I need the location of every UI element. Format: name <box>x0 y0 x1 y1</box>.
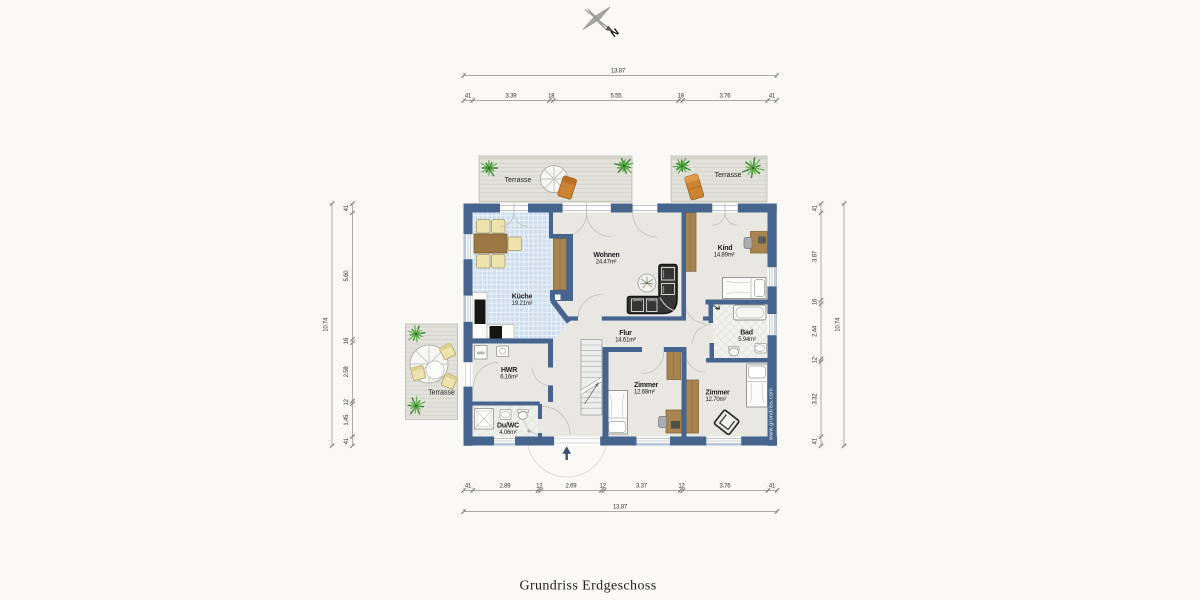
svg-text:12: 12 <box>813 356 819 363</box>
svg-text:24.47m²: 24.47m² <box>596 260 617 266</box>
svg-text:18: 18 <box>677 94 684 100</box>
svg-text:Wohnen: Wohnen <box>593 252 619 259</box>
svg-text:3.32: 3.32 <box>813 393 819 405</box>
svg-text:3.76: 3.76 <box>720 94 732 100</box>
svg-text:14.61m²: 14.61m² <box>615 338 636 344</box>
svg-text:WM: WM <box>477 351 485 356</box>
svg-text:3.37: 3.37 <box>636 484 648 490</box>
svg-text:Kind: Kind <box>718 245 733 252</box>
svg-text:41: 41 <box>344 437 350 444</box>
svg-text:41: 41 <box>769 484 776 490</box>
svg-text:16: 16 <box>344 337 350 344</box>
svg-text:12.70m²: 12.70m² <box>706 397 727 403</box>
svg-text:Zimmer: Zimmer <box>706 390 731 397</box>
svg-text:41: 41 <box>344 204 350 211</box>
svg-text:Terrasse: Terrasse <box>428 390 455 397</box>
svg-text:www.grundriss.com: www.grundriss.com <box>768 388 774 441</box>
svg-text:2.89: 2.89 <box>500 484 512 490</box>
svg-text:3.76: 3.76 <box>720 484 732 490</box>
svg-text:Grundriss Erdgeschoss: Grundriss Erdgeschoss <box>519 579 656 594</box>
svg-text:Zimmer: Zimmer <box>634 382 659 389</box>
svg-text:5.60: 5.60 <box>344 270 350 282</box>
svg-text:12: 12 <box>344 398 350 405</box>
svg-text:12: 12 <box>536 484 543 490</box>
svg-text:18: 18 <box>548 94 555 100</box>
svg-text:3.87: 3.87 <box>813 250 819 262</box>
svg-text:12: 12 <box>678 484 685 490</box>
svg-text:41: 41 <box>813 204 819 211</box>
svg-text:2.58: 2.58 <box>344 366 350 378</box>
svg-text:14.89m²: 14.89m² <box>714 253 735 259</box>
svg-text:Du/WC: Du/WC <box>497 423 519 430</box>
svg-text:6.16m²: 6.16m² <box>500 375 518 381</box>
svg-text:Küche: Küche <box>512 294 533 301</box>
svg-text:10.74: 10.74 <box>324 317 330 332</box>
svg-text:HWR: HWR <box>501 367 517 374</box>
svg-text:41: 41 <box>465 484 472 490</box>
svg-text:5.55: 5.55 <box>611 94 623 100</box>
svg-text:12: 12 <box>600 484 607 490</box>
svg-text:Flur: Flur <box>619 330 632 337</box>
svg-text:13.87: 13.87 <box>613 505 628 511</box>
svg-text:1.45: 1.45 <box>344 414 350 426</box>
svg-text:41: 41 <box>769 94 776 100</box>
svg-text:41: 41 <box>813 437 819 444</box>
svg-text:2.69: 2.69 <box>566 484 578 490</box>
svg-text:2.44: 2.44 <box>813 325 819 337</box>
svg-text:13.87: 13.87 <box>611 69 626 75</box>
svg-text:4.06m²: 4.06m² <box>499 430 517 436</box>
svg-text:12.68m²: 12.68m² <box>634 390 655 396</box>
svg-text:Bad: Bad <box>740 330 753 337</box>
svg-text:41: 41 <box>465 94 472 100</box>
svg-text:16: 16 <box>813 298 819 305</box>
svg-text:10.74: 10.74 <box>836 317 842 332</box>
svg-text:Terrasse: Terrasse <box>715 172 742 179</box>
svg-text:5.94m²: 5.94m² <box>738 337 756 343</box>
svg-text:19.21m²: 19.21m² <box>512 301 533 307</box>
svg-text:3.39: 3.39 <box>506 94 518 100</box>
svg-text:Terrasse: Terrasse <box>505 177 532 184</box>
